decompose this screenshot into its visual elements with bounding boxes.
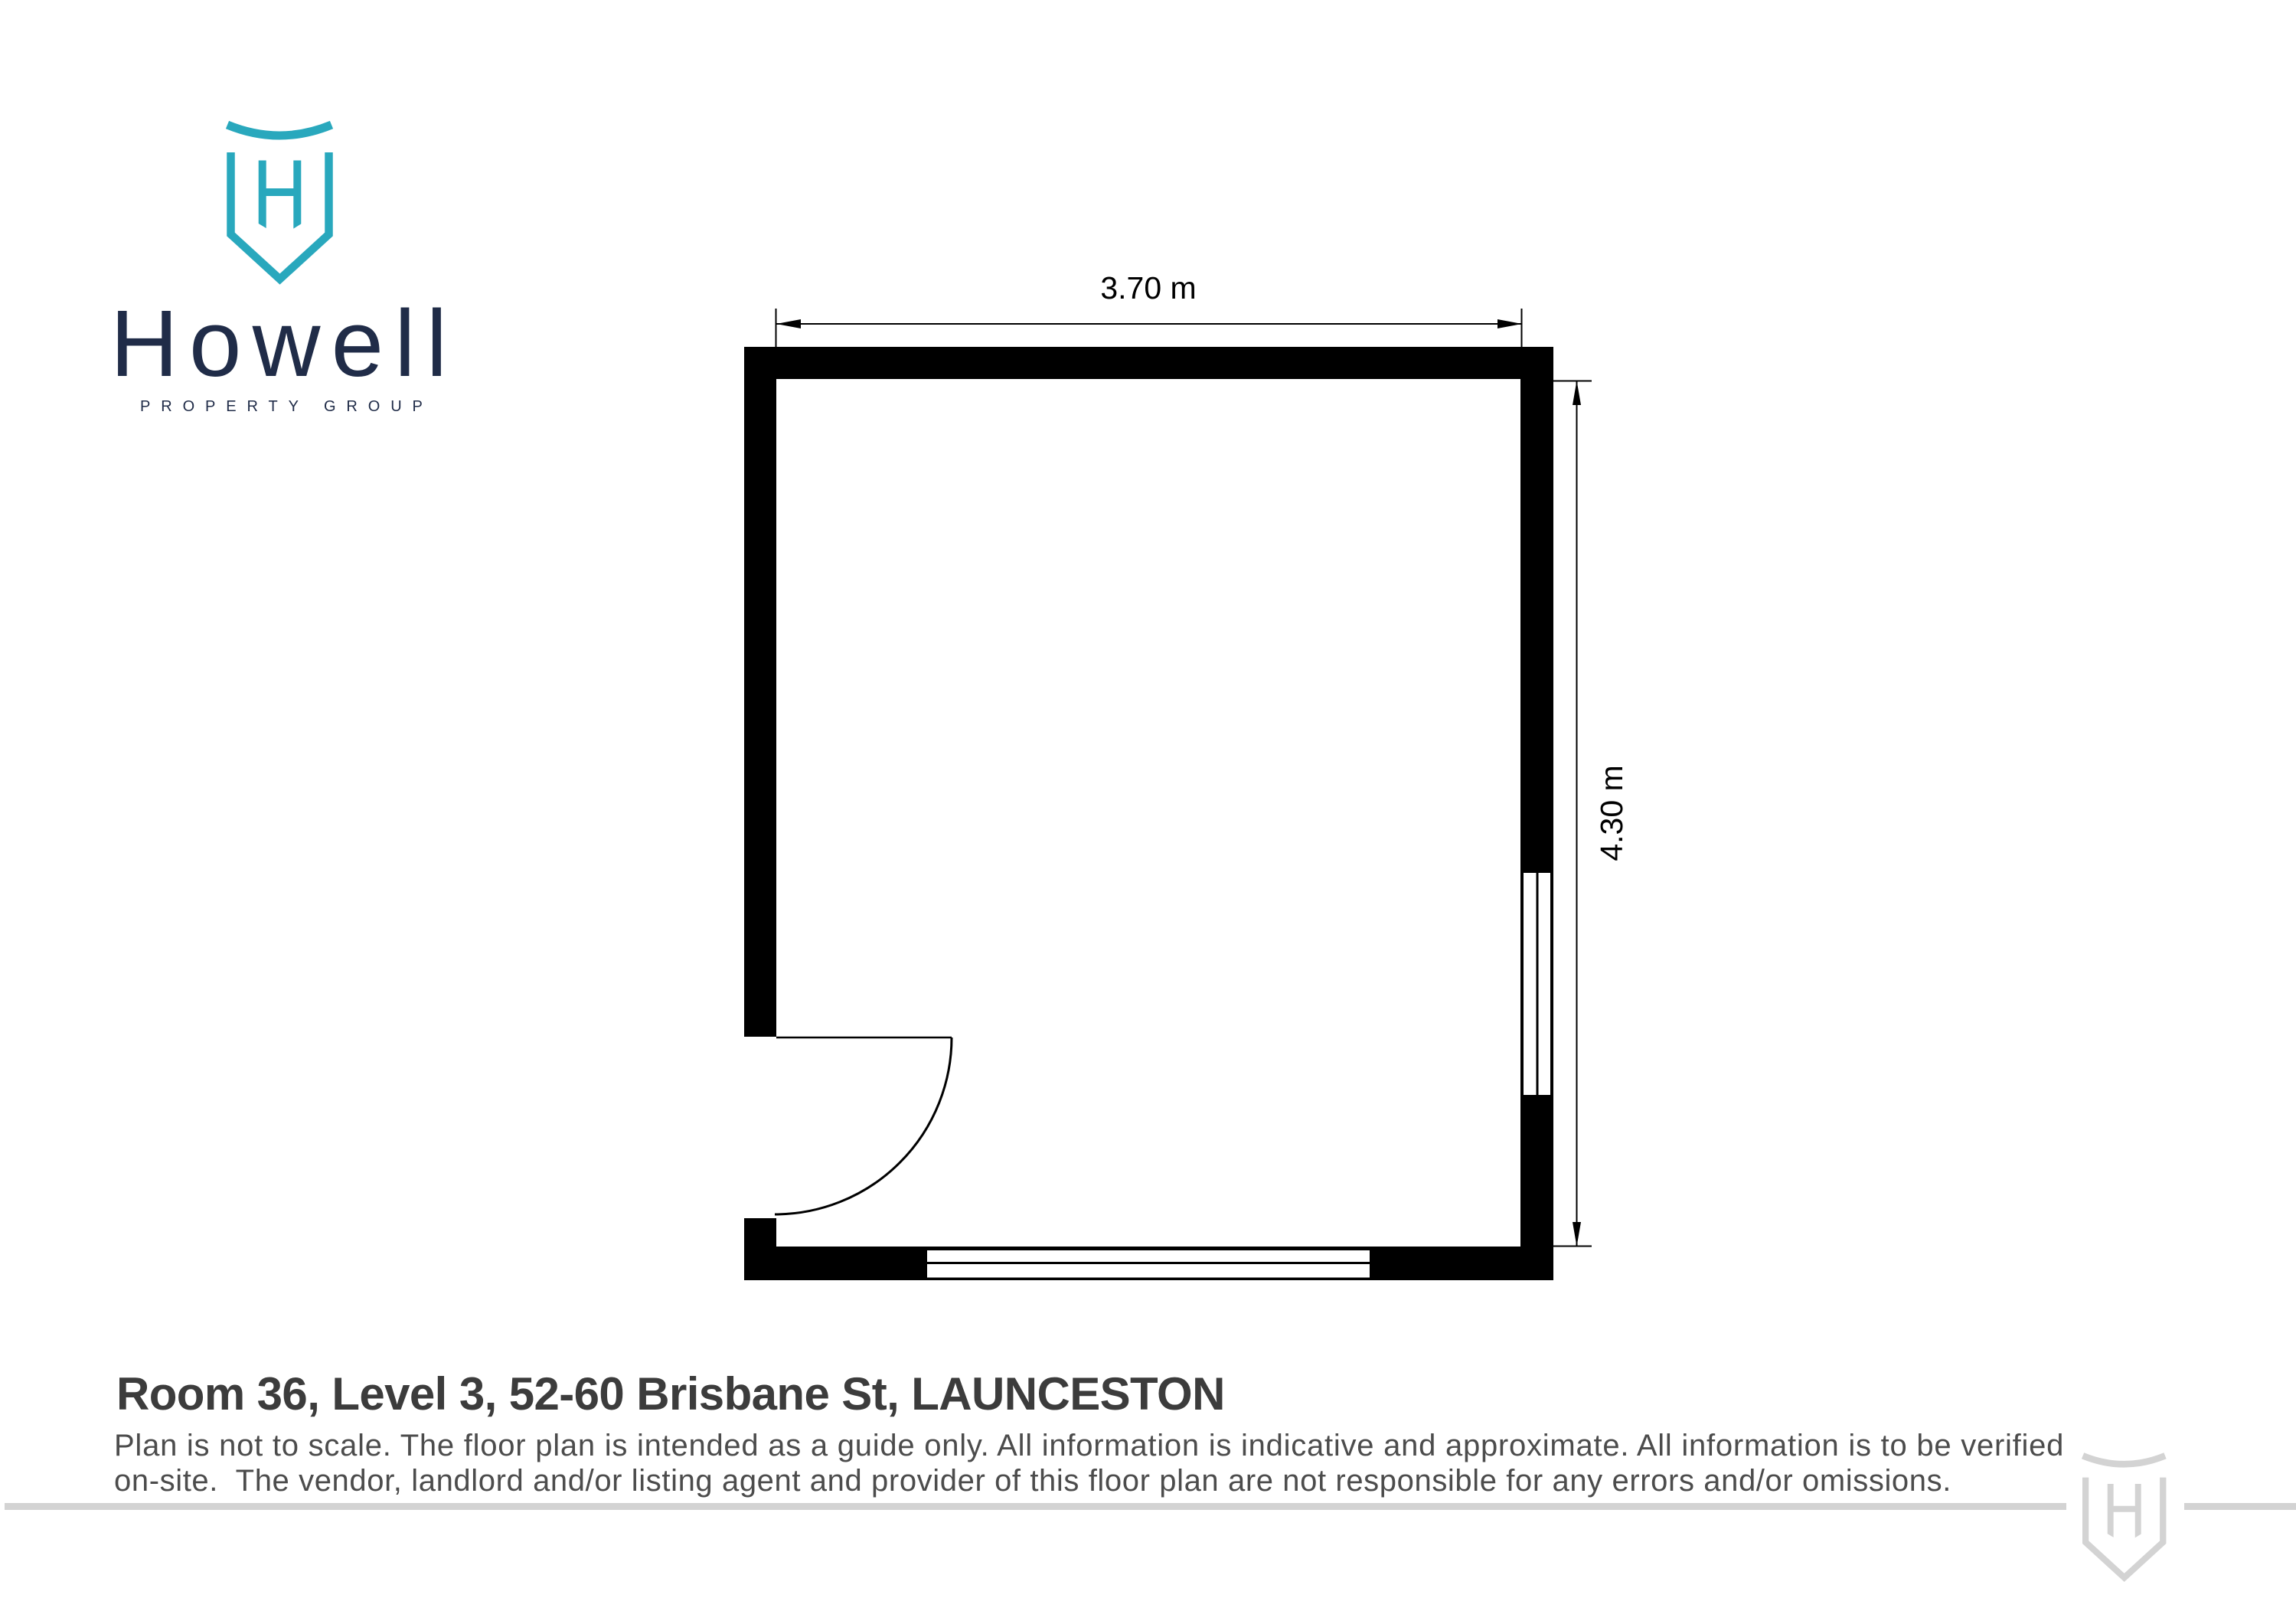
svg-text:on-site. The vendor, landlord: on-site. The vendor, landlord and/or lis… [114, 1464, 1951, 1498]
svg-text:Howell: Howell [110, 292, 458, 397]
svg-text:Room 36, Level 3, 52-60 Brisba: Room 36, Level 3, 52-60 Brisbane St, LAU… [116, 1368, 1225, 1420]
svg-text:3.70 m: 3.70 m [1100, 270, 1196, 306]
svg-text:PROPERTY GROUP: PROPERTY GROUP [140, 398, 433, 415]
svg-text:Plan is not to scale. The floo: Plan is not to scale. The floor plan is … [114, 1429, 2064, 1462]
svg-text:4.30 m: 4.30 m [1594, 765, 1629, 861]
